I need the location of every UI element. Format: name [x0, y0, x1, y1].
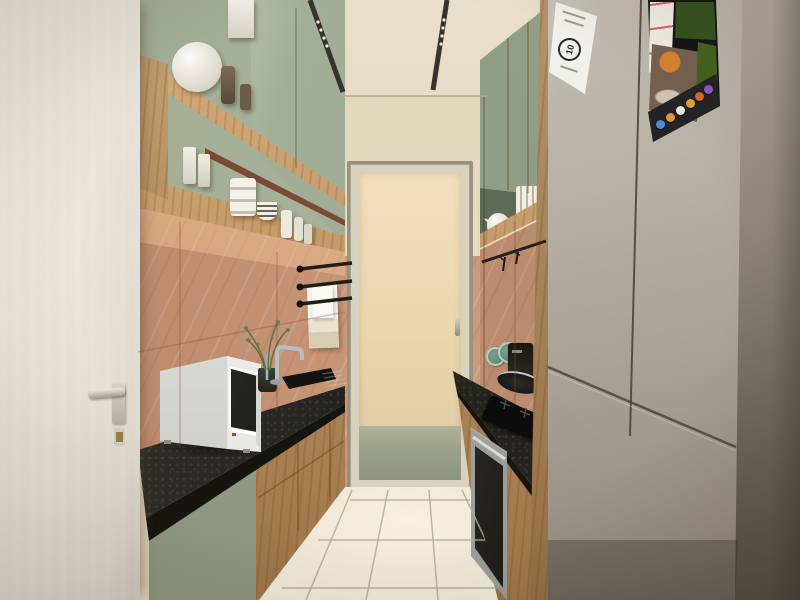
vignette [0, 0, 800, 600]
kitchen-render: 10 [0, 0, 800, 600]
